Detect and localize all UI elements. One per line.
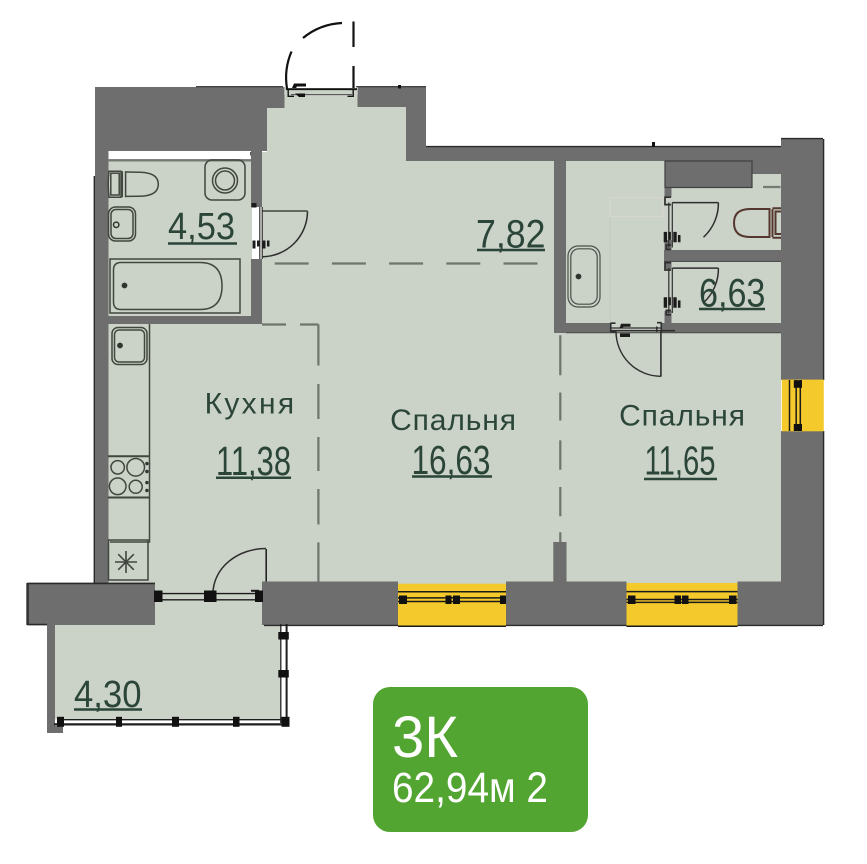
svg-text:Спальня: Спальня xyxy=(390,404,517,437)
svg-text:4,53: 4,53 xyxy=(168,206,235,248)
svg-text:62,94м 2: 62,94м 2 xyxy=(392,764,548,812)
svg-text:Кухня: Кухня xyxy=(205,388,297,421)
svg-text:11,65: 11,65 xyxy=(645,438,716,484)
svg-text:3К: 3К xyxy=(392,705,458,770)
svg-text:Спальня: Спальня xyxy=(619,400,746,433)
